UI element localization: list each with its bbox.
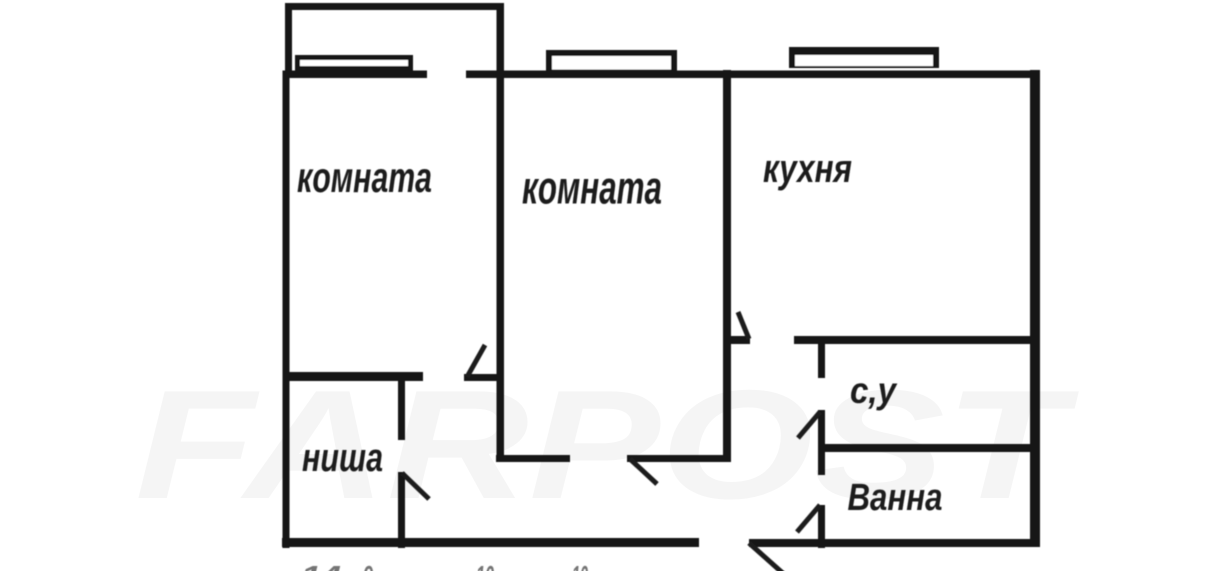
svg-text:Ванна: Ванна <box>848 477 943 519</box>
svg-text:9: 9 <box>363 560 373 571</box>
svg-text:ниша: ниша <box>302 436 383 480</box>
svg-text:10: 10 <box>572 560 588 571</box>
svg-text:14: 14 <box>301 560 342 571</box>
svg-text:10: 10 <box>476 560 494 571</box>
svg-text:кухня: кухня <box>763 147 852 191</box>
svg-text:комната: комната <box>522 162 662 214</box>
svg-text:с,у: с,у <box>850 370 898 411</box>
svg-text:комната: комната <box>297 154 432 202</box>
